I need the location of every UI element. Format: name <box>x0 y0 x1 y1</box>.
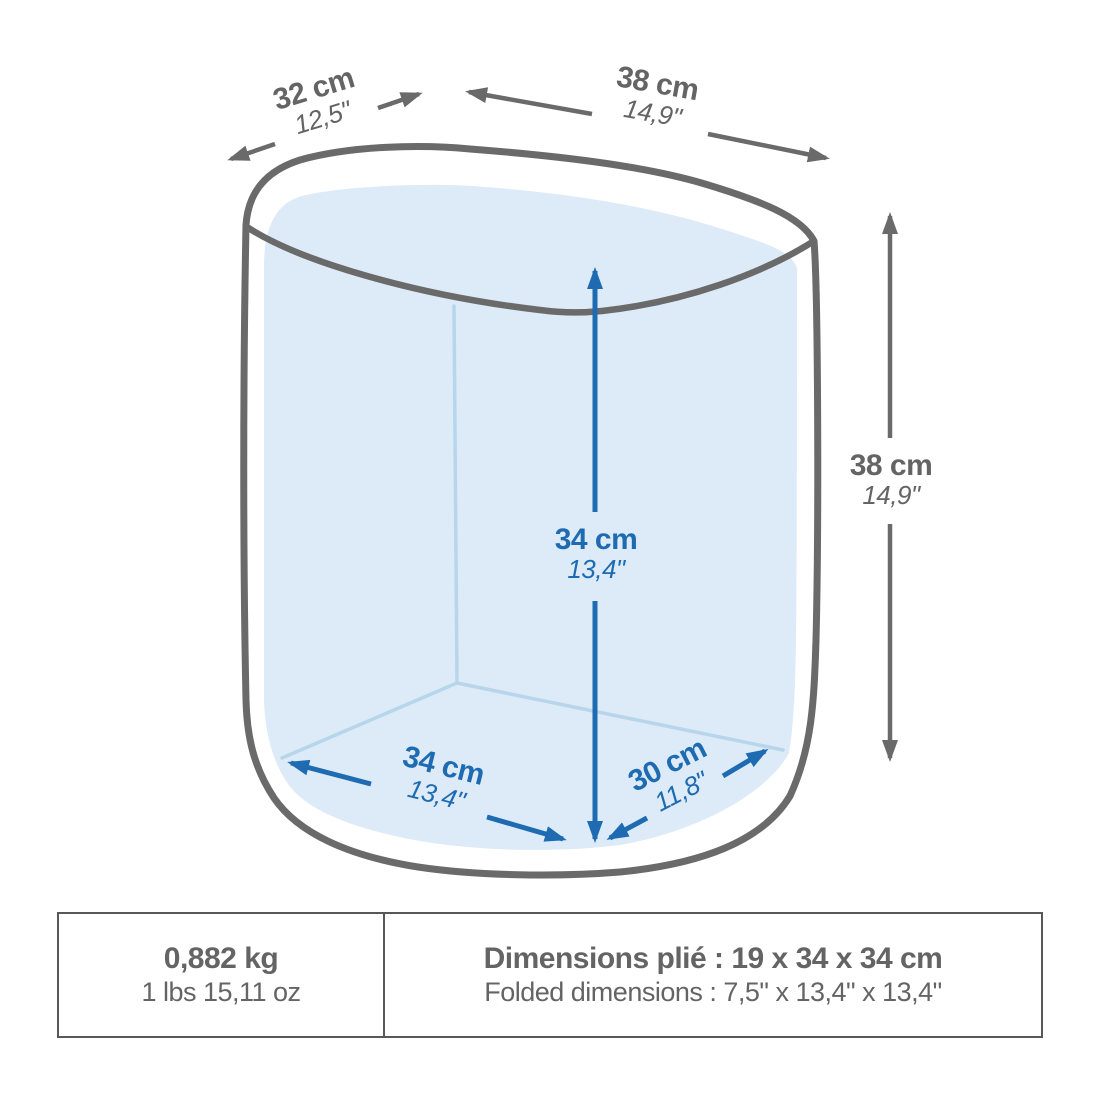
weight-lbs: 1 lbs 15,11 oz <box>141 976 300 1009</box>
folded-dimensions-en: Folded dimensions : 7,5" x 13,4" x 13,4" <box>484 976 942 1009</box>
width-top-arrow-left <box>469 92 592 114</box>
spec-cell-weight: 0,882 kg 1 lbs 15,11 oz <box>59 914 385 1036</box>
dimension-label-height-right: 38 cm 14,9" <box>850 450 933 510</box>
height-right-inch: 14,9" <box>850 481 933 510</box>
inner-height-inch: 13,4" <box>555 555 638 584</box>
product-dimensions-diagram: 32 cm 12,5" 38 cm 14,9" 38 cm 14,9" 34 c… <box>0 0 1100 1100</box>
spec-cell-folded-dimensions: Dimensions plié : 19 x 34 x 34 cm Folded… <box>385 914 1041 1036</box>
dimension-label-inner-height: 34 cm 13,4" <box>555 524 638 584</box>
weight-kg: 0,882 kg <box>164 941 278 976</box>
height-right-cm: 38 cm <box>850 450 933 481</box>
width-top-arrow-right <box>708 134 826 158</box>
spec-table: 0,882 kg 1 lbs 15,11 oz Dimensions plié … <box>57 912 1043 1038</box>
folded-dimensions-fr: Dimensions plié : 19 x 34 x 34 cm <box>484 941 943 976</box>
depth-top-arrow-left <box>231 144 275 159</box>
inner-height-cm: 34 cm <box>555 524 638 555</box>
depth-top-arrow-right <box>378 94 419 108</box>
